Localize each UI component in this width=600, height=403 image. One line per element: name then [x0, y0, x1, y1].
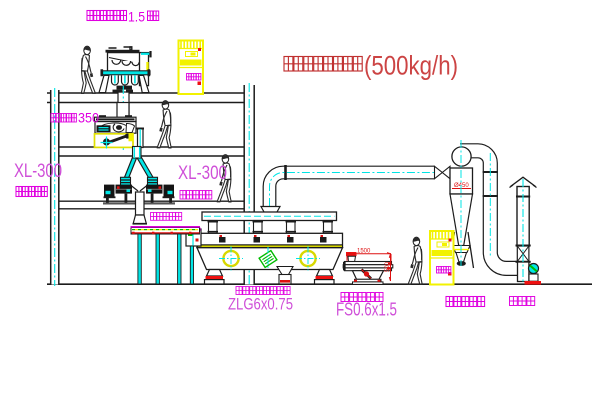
svg-text:XL-300: XL-300	[178, 163, 227, 184]
svg-text:500: 500	[385, 261, 391, 272]
svg-text:350: 350	[78, 111, 99, 126]
svg-text:1500: 1500	[357, 249, 371, 255]
svg-text:ZLG6x0.75: ZLG6x0.75	[228, 295, 293, 314]
svg-text:1.5: 1.5	[128, 9, 145, 25]
svg-text:FS0.6x1.5: FS0.6x1.5	[336, 300, 397, 320]
svg-text:(500kg/h): (500kg/h)	[364, 51, 458, 81]
svg-text:XL-300: XL-300	[14, 161, 62, 182]
